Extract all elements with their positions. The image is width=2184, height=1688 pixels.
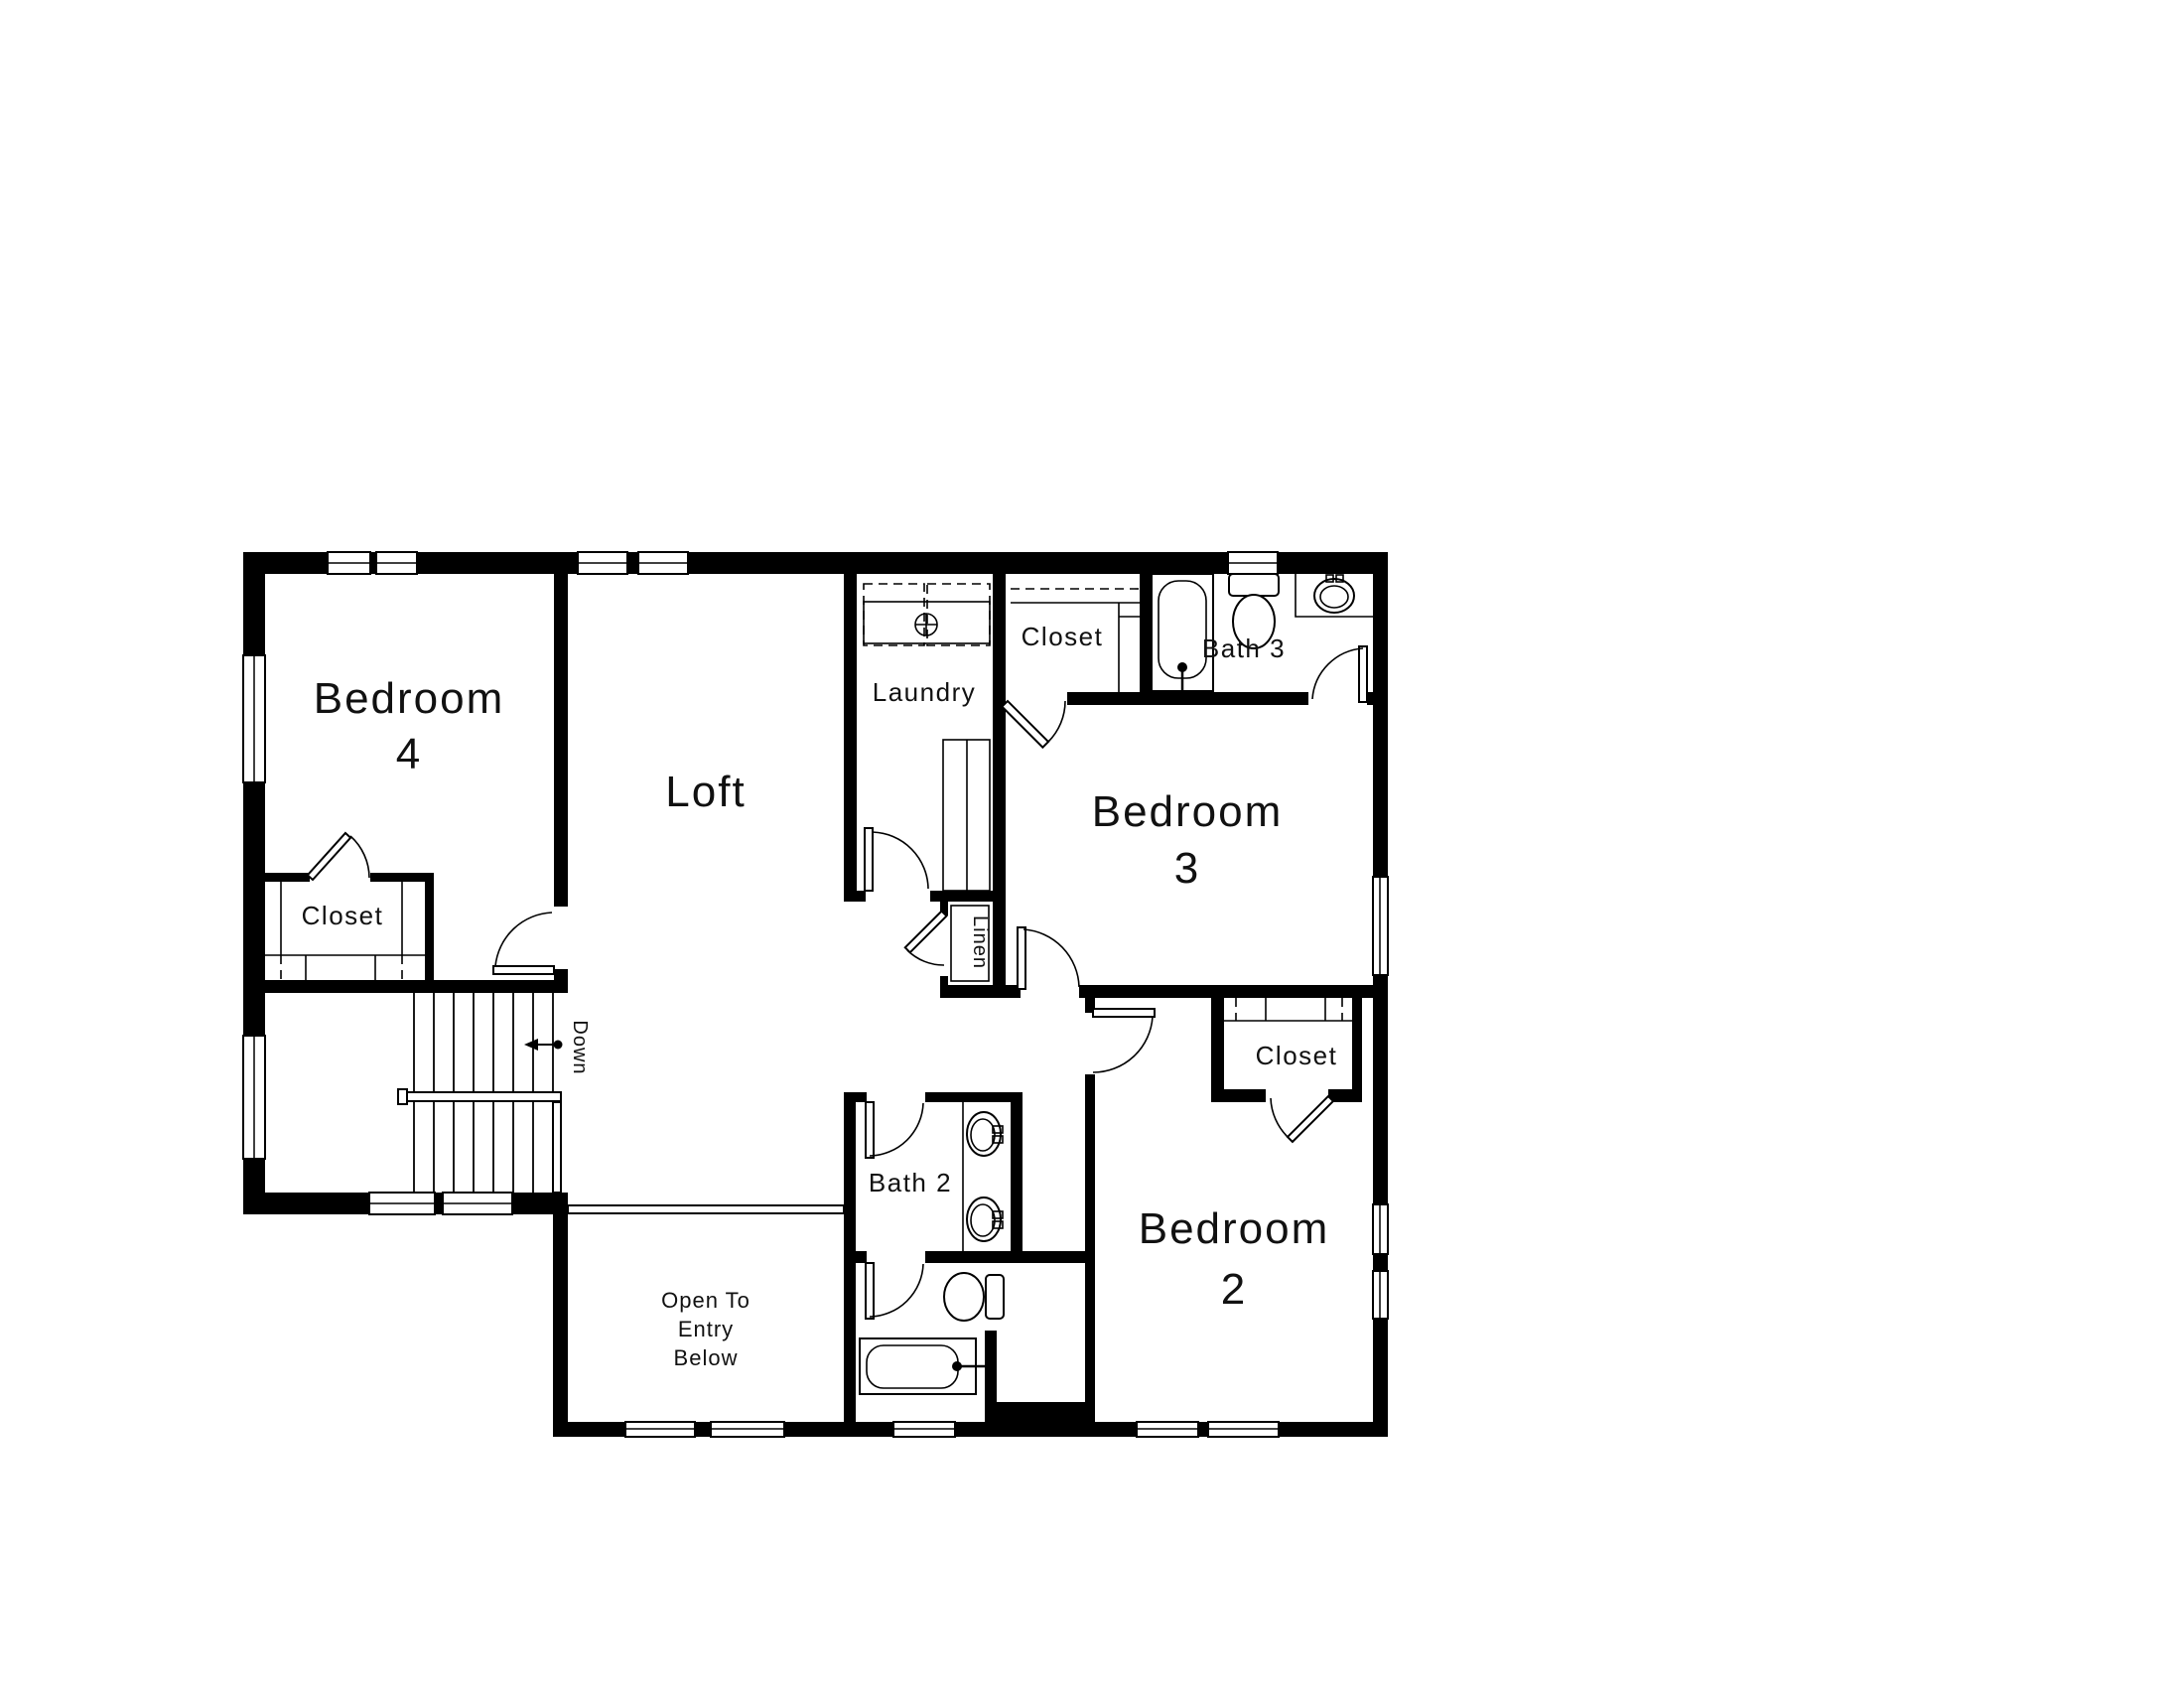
open-to-entry-label: Open To Entry Below	[661, 1288, 751, 1370]
bedroom3-label: Bedroom	[1092, 787, 1284, 836]
stair-side-rail	[553, 1102, 561, 1193]
bedroom2-label: Bedroom	[1139, 1204, 1330, 1253]
bath2-toilet-icon	[944, 1273, 1004, 1321]
bath3-label: Bath 3	[1202, 633, 1286, 663]
bath2-label: Bath 2	[869, 1168, 952, 1197]
window-bedroom3-right	[1373, 877, 1388, 975]
bedroom2-number: 2	[1221, 1265, 1247, 1314]
bedroom2-closet-door	[1271, 1096, 1333, 1142]
down-arrow	[524, 1039, 563, 1051]
bath2-bathtub-icon	[860, 1338, 985, 1394]
open-to-entry-line1: Open To	[661, 1288, 751, 1313]
bedroom3-door	[1018, 927, 1079, 989]
laundry-label: Laundry	[873, 677, 976, 707]
linen-label: Linen	[969, 915, 991, 969]
bedroom4-closet-shelves	[265, 882, 425, 980]
bath3-bathtub-icon	[1152, 574, 1213, 691]
bedroom2-door	[1093, 1009, 1155, 1072]
laundry-counter	[943, 740, 990, 891]
loft-label: Loft	[665, 768, 746, 816]
bedroom4-closet-door	[308, 833, 369, 880]
bedroom2-closet-shelves	[1224, 998, 1352, 1021]
stair-handrail-cap	[398, 1089, 407, 1104]
bath3-door	[1312, 646, 1367, 702]
floor-plan-page: Bedroom 4 Loft Laundry Closet Closet Bat…	[0, 0, 2184, 1688]
window-bath3-top	[1228, 552, 1278, 574]
open-to-below-railing	[568, 1205, 844, 1213]
bedroom2-closet-label: Closet	[1256, 1041, 1338, 1070]
open-to-entry-line2: Entry	[678, 1317, 734, 1341]
bath3-sink-icon	[1296, 574, 1373, 617]
bedroom4-door	[493, 913, 554, 974]
bedroom3-closet-door	[1002, 701, 1065, 748]
window-bedroom4-left	[243, 655, 265, 782]
bath2-sink-icon-2	[967, 1197, 1003, 1241]
stair-handrail	[405, 1092, 561, 1101]
bath2-sink-icon-1	[967, 1112, 1003, 1156]
laundry-door	[865, 828, 928, 891]
bath2-door	[866, 1102, 923, 1158]
bedroom4-closet-label: Closet	[302, 901, 384, 930]
bedroom4-label: Bedroom	[314, 674, 505, 723]
bedroom4-number: 4	[396, 730, 422, 778]
open-to-entry-line3: Below	[674, 1345, 739, 1370]
bedroom3-number: 3	[1174, 844, 1200, 893]
bath2-toilet-compartment-door	[866, 1263, 923, 1319]
floor-plan: Bedroom 4 Loft Laundry Closet Closet Bat…	[0, 0, 2184, 1688]
window-stair-landing-left	[243, 1036, 265, 1159]
window-bedroom2-bottom	[1137, 1422, 1279, 1437]
stairs	[398, 993, 563, 1193]
washer-dryer	[864, 584, 990, 645]
stairs-down-label: Down	[569, 1020, 591, 1074]
window-bath2-bottom	[893, 1422, 955, 1437]
bedroom3-closet-label: Closet	[1022, 622, 1104, 651]
linen-door	[905, 912, 947, 965]
stair-treads-lower-run	[414, 1102, 533, 1193]
